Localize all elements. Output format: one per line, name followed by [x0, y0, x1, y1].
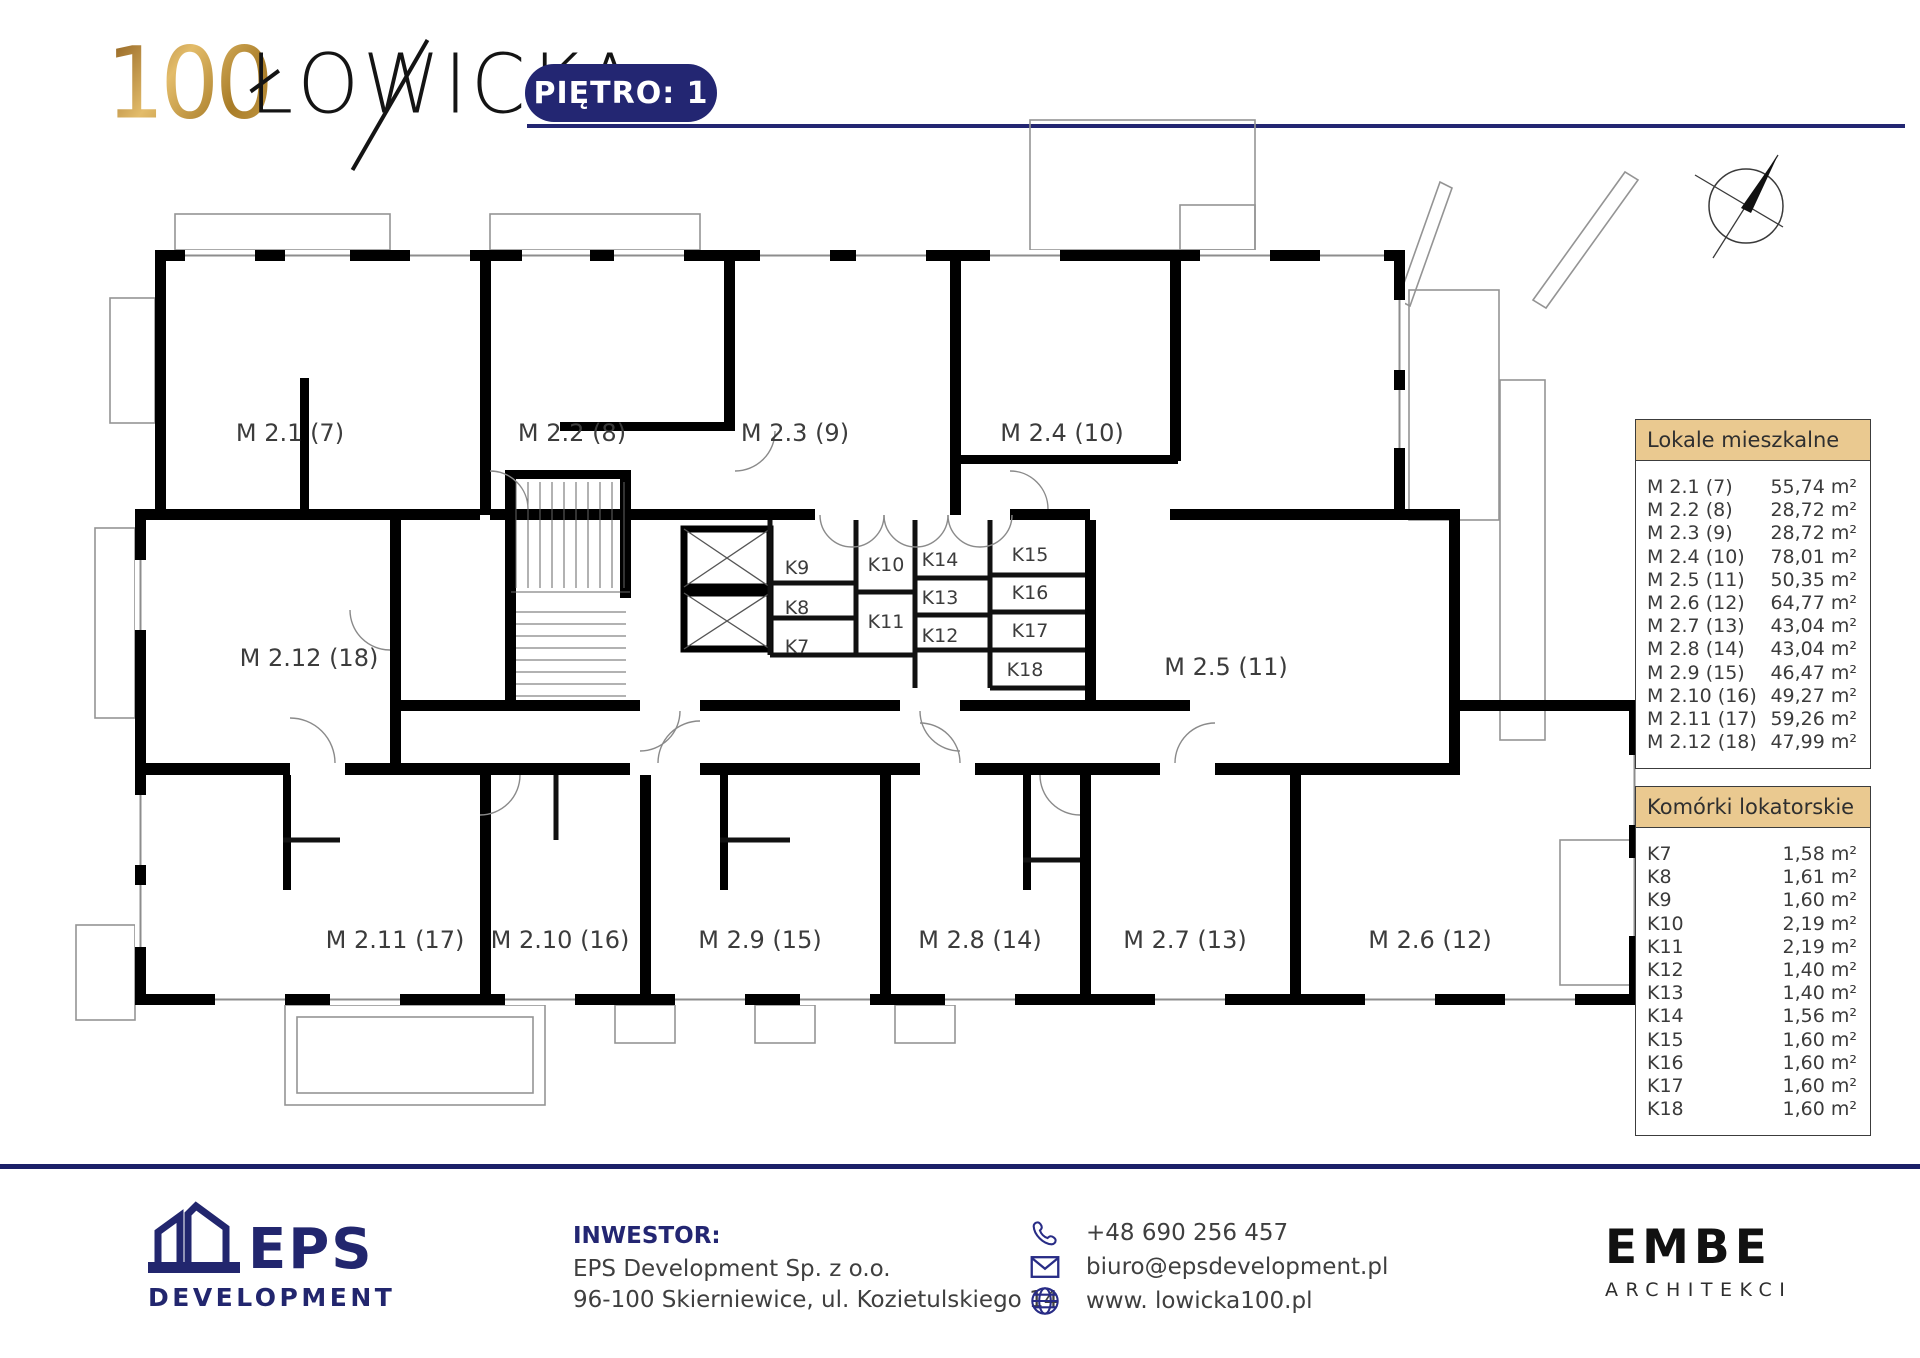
unit-id: K18 [1647, 1098, 1684, 1121]
unit-id: K9 [1647, 889, 1672, 912]
floor-plan-drawing [0, 0, 1920, 1160]
apartments-legend-title: Lokale mieszkalne [1636, 420, 1870, 461]
storage-label: K16 [1012, 582, 1049, 604]
unit-area: 1,60 m² [1783, 1029, 1857, 1052]
unit-area: 78,01 m² [1770, 546, 1857, 569]
legend-row: M 2.4 (10) 78,01 m² [1636, 546, 1870, 569]
unit-id: M 2.9 (15) [1647, 662, 1745, 685]
unit-id: M 2.3 (9) [1647, 522, 1733, 545]
investor-company: EPS Development Sp. z o.o. [573, 1254, 1058, 1285]
phone-number: +48 690 256 457 [1086, 1220, 1288, 1246]
unit-area: 2,19 m² [1783, 913, 1857, 936]
phone-row: +48 690 256 457 [1030, 1216, 1388, 1250]
legend-row: M 2.8 (14) 43,04 m² [1636, 638, 1870, 661]
storage-legend-rows: K7 1,58 m² K8 1,61 m² K9 1,60 m² K10 2,1… [1636, 828, 1870, 1135]
room-label: M 2.8 (14) [918, 926, 1041, 954]
room-label: M 2.3 (9) [741, 419, 849, 447]
eps-development-logo: EPS DEVELOPMENT [148, 1196, 395, 1312]
unit-id: M 2.4 (10) [1647, 546, 1745, 569]
storage-label: K10 [868, 554, 905, 576]
unit-area: 1,60 m² [1783, 1075, 1857, 1098]
unit-id: K11 [1647, 936, 1684, 959]
floor-plan: M 2.1 (7)M 2.2 (8)M 2.3 (9)M 2.4 (10)M 2… [0, 0, 1920, 1160]
eps-building-icon [148, 1196, 240, 1274]
website-url: www. lowicka100.pl [1086, 1288, 1312, 1314]
unit-id: K13 [1647, 982, 1684, 1005]
unit-id: K15 [1647, 1029, 1684, 1052]
unit-area: 1,60 m² [1783, 889, 1857, 912]
apartments-legend-rows: M 2.1 (7) 55,74 m² M 2.2 (8) 28,72 m² M … [1636, 461, 1870, 768]
unit-area: 1,60 m² [1783, 1052, 1857, 1075]
storage-label: K12 [922, 625, 959, 647]
website-row: www. lowicka100.pl [1030, 1284, 1388, 1318]
unit-id: K7 [1647, 843, 1672, 866]
unit-id: M 2.5 (11) [1647, 569, 1745, 592]
unit-area: 59,26 m² [1770, 708, 1857, 731]
unit-id: M 2.8 (14) [1647, 638, 1745, 661]
unit-id: K14 [1647, 1005, 1684, 1028]
room-label: M 2.9 (15) [698, 926, 821, 954]
unit-area: 1,56 m² [1783, 1005, 1857, 1028]
storage-label: K7 [785, 636, 810, 658]
storage-label: K17 [1012, 620, 1049, 642]
storage-legend: Komórki lokatorskie K7 1,58 m² K8 1,61 m… [1635, 786, 1871, 1136]
room-label: M 2.6 (12) [1368, 926, 1491, 954]
balcony-outlines [76, 120, 1645, 1105]
legend-row: K11 2,19 m² [1636, 936, 1870, 959]
legend-row: K13 1,40 m² [1636, 982, 1870, 1005]
room-label: M 2.12 (18) [240, 644, 379, 672]
contact-block: +48 690 256 457 biuro@epsdevelopment.pl … [1030, 1216, 1388, 1318]
embe-logo-name: EMBE [1605, 1224, 1792, 1271]
unit-id: M 2.11 (17) [1647, 708, 1757, 731]
storage-label: K18 [1007, 659, 1044, 681]
unit-area: 47,99 m² [1770, 731, 1857, 754]
legend-row: K8 1,61 m² [1636, 866, 1870, 889]
room-label: M 2.1 (7) [236, 419, 344, 447]
page: 100 ŁOWICKA PIĘTRO: 1 [0, 0, 1920, 1358]
room-label: M 2.2 (8) [518, 419, 626, 447]
unit-id: K16 [1647, 1052, 1684, 1075]
unit-area: 43,04 m² [1770, 638, 1857, 661]
legend-row: M 2.12 (18) 47,99 m² [1636, 731, 1870, 754]
legend-row: M 2.9 (15) 46,47 m² [1636, 662, 1870, 685]
unit-area: 1,61 m² [1783, 866, 1857, 889]
room-label: M 2.10 (16) [491, 926, 630, 954]
room-label: M 2.7 (13) [1123, 926, 1246, 954]
unit-id: K17 [1647, 1075, 1684, 1098]
unit-area: 2,19 m² [1783, 936, 1857, 959]
unit-area: 1,58 m² [1783, 843, 1857, 866]
footer-divider [0, 1164, 1920, 1169]
globe-icon [1030, 1286, 1060, 1316]
eps-logo-name: EPS [248, 1226, 374, 1274]
unit-id: M 2.10 (16) [1647, 685, 1757, 708]
unit-area: 43,04 m² [1770, 615, 1857, 638]
mail-icon [1030, 1255, 1060, 1279]
storage-label: K14 [922, 549, 959, 571]
legend-row: M 2.6 (12) 64,77 m² [1636, 592, 1870, 615]
unit-area: 64,77 m² [1770, 592, 1857, 615]
legend-row: M 2.11 (17) 59,26 m² [1636, 708, 1870, 731]
storage-label: K8 [785, 597, 810, 619]
room-label: M 2.4 (10) [1000, 419, 1123, 447]
unit-id: M 2.2 (8) [1647, 499, 1733, 522]
unit-id: M 2.6 (12) [1647, 592, 1745, 615]
unit-area: 1,40 m² [1783, 959, 1857, 982]
unit-area: 1,60 m² [1783, 1098, 1857, 1121]
email-address: biuro@epsdevelopment.pl [1086, 1254, 1388, 1280]
embe-logo-sub: ARCHITEKCI [1605, 1279, 1792, 1301]
legend-row: K7 1,58 m² [1636, 843, 1870, 866]
unit-area: 46,47 m² [1770, 662, 1857, 685]
unit-id: K12 [1647, 959, 1684, 982]
investor-address: 96-100 Skierniewice, ul. Kozietulskiego … [573, 1285, 1058, 1316]
legend-row: K18 1,60 m² [1636, 1098, 1870, 1121]
embe-architekci-logo: EMBE ARCHITEKCI [1605, 1224, 1792, 1301]
investor-block: INWESTOR: EPS Development Sp. z o.o. 96-… [573, 1221, 1058, 1316]
legend-row: M 2.1 (7) 55,74 m² [1636, 476, 1870, 499]
legend-row: K16 1,60 m² [1636, 1052, 1870, 1075]
storage-label: K9 [785, 557, 810, 579]
legend-row: M 2.5 (11) 50,35 m² [1636, 569, 1870, 592]
room-label: M 2.5 (11) [1164, 653, 1287, 681]
unit-area: 50,35 m² [1770, 569, 1857, 592]
unit-area: 49,27 m² [1770, 685, 1857, 708]
phone-icon [1030, 1218, 1060, 1248]
legend-row: M 2.2 (8) 28,72 m² [1636, 499, 1870, 522]
eps-logo-sub: DEVELOPMENT [148, 1283, 395, 1312]
legend-row: K12 1,40 m² [1636, 959, 1870, 982]
unit-id: M 2.1 (7) [1647, 476, 1733, 499]
unit-id: K8 [1647, 866, 1672, 889]
legend-row: M 2.7 (13) 43,04 m² [1636, 615, 1870, 638]
legend-row: K10 2,19 m² [1636, 913, 1870, 936]
elevator-shafts [684, 529, 770, 649]
unit-area: 1,40 m² [1783, 982, 1857, 1005]
legend-row: M 2.10 (16) 49,27 m² [1636, 685, 1870, 708]
investor-label: INWESTOR: [573, 1221, 1058, 1252]
storage-label: K13 [922, 587, 959, 609]
apartments-legend: Lokale mieszkalne M 2.1 (7) 55,74 m² M 2… [1635, 419, 1871, 769]
room-label: M 2.11 (17) [326, 926, 465, 954]
unit-area: 55,74 m² [1770, 476, 1857, 499]
legend-row: K17 1,60 m² [1636, 1075, 1870, 1098]
unit-id: K10 [1647, 913, 1684, 936]
email-row: biuro@epsdevelopment.pl [1030, 1250, 1388, 1284]
unit-area: 28,72 m² [1770, 499, 1857, 522]
legend-row: M 2.3 (9) 28,72 m² [1636, 522, 1870, 545]
legend-row: K9 1,60 m² [1636, 889, 1870, 912]
storage-legend-title: Komórki lokatorskie [1636, 787, 1870, 828]
unit-id: M 2.12 (18) [1647, 731, 1757, 754]
storage-label: K15 [1012, 544, 1049, 566]
storage-label: K11 [868, 611, 905, 633]
legend-row: K14 1,56 m² [1636, 1005, 1870, 1028]
legend-row: K15 1,60 m² [1636, 1029, 1870, 1052]
unit-area: 28,72 m² [1770, 522, 1857, 545]
unit-id: M 2.7 (13) [1647, 615, 1745, 638]
